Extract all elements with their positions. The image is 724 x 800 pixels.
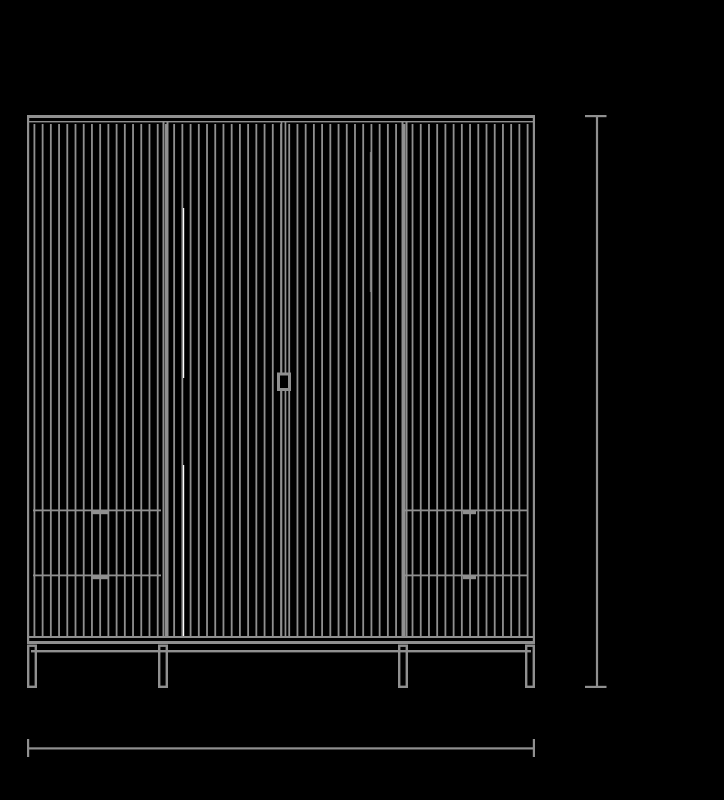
slat-line — [50, 124, 52, 636]
drawer-pull-notch — [92, 511, 108, 514]
slat-line — [206, 124, 208, 636]
width-dimension-right-cap — [533, 739, 535, 757]
slat-line — [91, 124, 93, 636]
height-dimension-bottom-cap — [585, 686, 607, 688]
height-dimension-line — [596, 115, 598, 688]
leg-stretcher-rail — [31, 650, 531, 652]
slat-line — [107, 124, 109, 636]
door-divider-line — [402, 122, 404, 637]
slat-line — [83, 124, 85, 636]
drawing-canvas — [0, 0, 724, 800]
slat-line — [527, 124, 529, 636]
base-and-legs — [27, 636, 535, 687]
slat-line — [223, 124, 225, 636]
slat-line — [313, 124, 315, 636]
slat-line — [231, 124, 233, 636]
slat-line — [272, 124, 274, 636]
slat-line — [379, 124, 381, 636]
door-divider-line — [406, 122, 408, 637]
slat-line — [510, 124, 512, 636]
slat-line — [99, 124, 101, 636]
width-dimension-left-cap — [27, 739, 29, 757]
highlight-lines — [183, 152, 371, 637]
slat-line — [403, 124, 405, 636]
door-edge-highlight-line — [370, 152, 371, 292]
slat-line — [116, 124, 118, 636]
slat-line — [190, 124, 192, 636]
slat-line — [494, 124, 496, 636]
slat-line — [66, 124, 68, 636]
slat-line — [198, 124, 200, 636]
slat-line — [34, 124, 36, 636]
cabinet-right-edge — [533, 115, 535, 644]
slat-line — [264, 124, 266, 636]
slat-line — [297, 124, 299, 636]
cabinet-bottom-rail — [27, 641, 535, 644]
slat-line — [387, 124, 389, 636]
slat-line — [412, 124, 414, 636]
slat-line — [346, 124, 348, 636]
slat-line — [436, 124, 438, 636]
slat-line — [461, 124, 463, 636]
slat-line — [157, 124, 159, 636]
slat-line — [214, 124, 216, 636]
slat-line — [338, 124, 340, 636]
slat-line — [362, 124, 364, 636]
slat-line — [486, 124, 488, 636]
cabinet-top-edge — [27, 115, 535, 118]
slat-line — [469, 124, 471, 636]
slat-line — [132, 124, 134, 636]
width-dimension-line — [27, 747, 535, 749]
drawer-pull-notch — [92, 576, 108, 579]
slat-line — [140, 124, 142, 636]
door-divider-line — [167, 122, 169, 637]
height-dimension-top-cap — [585, 115, 607, 117]
slat-line — [420, 124, 422, 636]
slat-line — [518, 124, 520, 636]
slat-line — [502, 124, 504, 636]
door-handle-plate — [279, 374, 290, 390]
cabinet-bottom-rail — [27, 636, 535, 638]
drawer-pull-notch — [463, 511, 476, 514]
slat-line — [149, 124, 151, 636]
slat-line — [247, 124, 249, 636]
slat-line — [477, 124, 479, 636]
slat-line — [58, 124, 60, 636]
slat-line — [173, 124, 175, 636]
door-edge-highlight-line — [183, 465, 184, 637]
slat-line — [329, 124, 331, 636]
door-edge-highlight-line — [183, 208, 184, 378]
slat-line — [75, 124, 77, 636]
slat-line — [428, 124, 430, 636]
slat-line — [255, 124, 257, 636]
slat-line — [42, 124, 44, 636]
slat-line — [321, 124, 323, 636]
slat-line — [354, 124, 356, 636]
slat-line — [453, 124, 455, 636]
door-divider-line — [163, 122, 165, 637]
slat-line — [124, 124, 126, 636]
slat-line — [445, 124, 447, 636]
slat-line — [305, 124, 307, 636]
slat-line — [181, 124, 183, 636]
slat-line — [395, 124, 397, 636]
wardrobe-front-elevation-drawing — [0, 0, 724, 800]
door-handle — [279, 374, 290, 390]
cabinet-left-edge — [27, 115, 29, 644]
drawer-pull-notch — [463, 576, 476, 579]
slat-line — [239, 124, 241, 636]
